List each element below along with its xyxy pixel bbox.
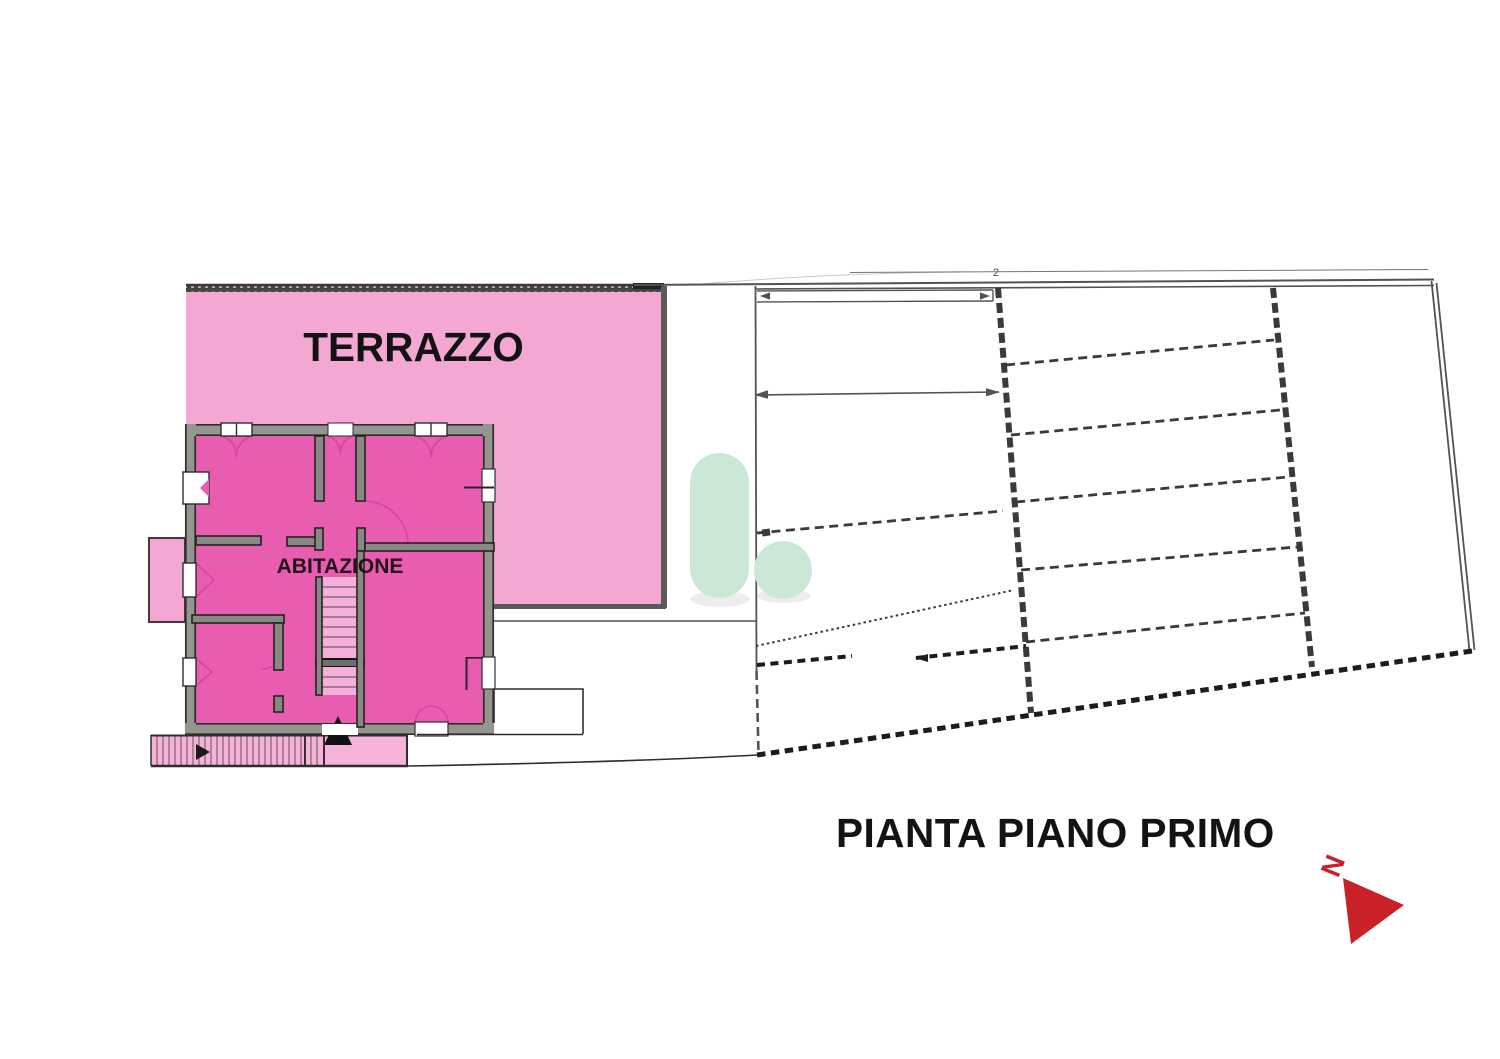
svg-text:PIANTA PIANO PRIMO: PIANTA PIANO PRIMO (836, 810, 1275, 856)
svg-text:N: N (1315, 851, 1351, 881)
svg-text:2: 2 (993, 267, 999, 279)
svg-text:TERRAZZO: TERRAZZO (303, 324, 523, 370)
svg-text:ABITAZIONE: ABITAZIONE (277, 555, 404, 578)
